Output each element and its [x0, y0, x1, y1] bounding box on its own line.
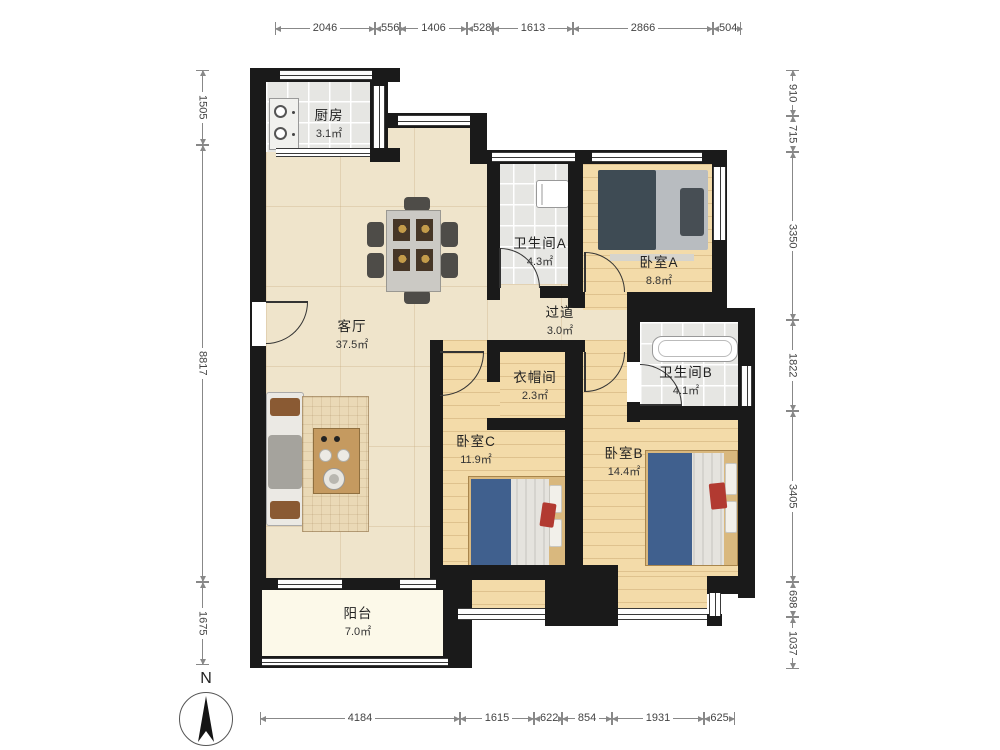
dim-value: 1505 [197, 92, 209, 122]
wall [707, 576, 753, 594]
bed-b-pillow-red [709, 482, 728, 510]
dining-chair [404, 197, 430, 211]
dim-value: 3350 [787, 221, 799, 251]
table-bowl [323, 468, 345, 490]
dim-value: 854 [575, 712, 599, 725]
bed-c-blanket [471, 479, 511, 571]
window [373, 86, 385, 148]
wall [487, 352, 500, 382]
dim-segment-right: 3405 [786, 411, 799, 582]
bedroom-b-door-panel [584, 352, 586, 392]
table-bowl-inner [329, 474, 339, 484]
window [618, 608, 707, 620]
table-item [334, 436, 340, 442]
dim-segment-top: 1406 [400, 22, 467, 35]
room-label-kitchen: 厨房 3.1㎡ [315, 104, 344, 141]
bedroom-c-door-panel [440, 351, 484, 353]
dim-segment-right: 1037 [786, 617, 799, 669]
dim-segment-right: 698 [786, 582, 799, 617]
table-item [319, 449, 332, 462]
dim-segment-right: 1822 [786, 320, 799, 411]
sofa-pillow [270, 398, 300, 416]
bathtub [652, 336, 738, 362]
dining-chair [441, 222, 458, 247]
wall [487, 418, 583, 430]
dim-value: 2046 [310, 22, 340, 35]
dim-segment-bottom: 625 [704, 712, 735, 725]
dining-chair [404, 290, 430, 304]
stove [269, 98, 299, 150]
dim-segment-top: 504 [713, 22, 741, 35]
floor-plan-canvas: 厨房 3.1㎡ 客厅 37.5㎡ 卫生间A 4.3㎡ 卧室A 8.8㎡ 过道 3… [0, 0, 1000, 750]
bed-b-pillow [725, 463, 737, 495]
dining-table [386, 210, 441, 292]
wall [443, 578, 472, 668]
room-label-bedroom-a: 卧室A 8.8㎡ [639, 251, 678, 288]
dim-value: 1037 [787, 628, 799, 658]
window [262, 658, 448, 666]
dim-segment-bottom: 622 [534, 712, 562, 725]
wall [738, 308, 755, 598]
bed-c [468, 476, 566, 572]
dim-value: 715 [787, 122, 799, 146]
sofa-cushion [268, 435, 302, 489]
bed-b-blanket [648, 453, 692, 565]
room-label-bedroom-c: 卧室C 11.9㎡ [456, 430, 496, 467]
dim-value: 1406 [418, 22, 448, 35]
room-label-closet: 衣帽间 2.3㎡ [513, 366, 557, 403]
dim-segment-bottom: 4184 [260, 712, 460, 725]
washing-machine [536, 180, 569, 208]
entry-door-opening [252, 302, 266, 346]
wall [627, 340, 640, 352]
place-mat [416, 219, 433, 241]
dim-value: 1931 [643, 712, 673, 725]
room-label-bedroom-b: 卧室B 14.4㎡ [604, 442, 643, 479]
sliding-door [278, 579, 342, 589]
room-label-bathroom-b: 卫生间B 4.1㎡ [659, 361, 713, 398]
dim-segment-top: 2046 [275, 22, 375, 35]
dim-segment-right: 910 [786, 70, 799, 116]
dim-segment-left: 1505 [196, 70, 209, 145]
bedroom-a-door-panel [584, 252, 586, 292]
room-label-living: 客厅 37.5㎡ [336, 315, 368, 352]
dim-value: 1675 [197, 608, 209, 638]
dim-value: 698 [787, 587, 799, 611]
knob-icon [292, 111, 295, 114]
table-item [321, 436, 327, 442]
dim-value: 2866 [628, 22, 658, 35]
dim-segment-right: 3350 [786, 152, 799, 320]
dim-value: 3405 [787, 481, 799, 511]
wall [565, 345, 583, 585]
dim-segment-bottom: 854 [562, 712, 612, 725]
wall [627, 292, 727, 308]
bathroom-b-door-panel [640, 404, 682, 406]
table-item [337, 449, 350, 462]
room-label-hallway: 过道 3.0㎡ [546, 301, 575, 338]
dim-segment-right: 715 [786, 116, 799, 152]
dim-segment-top: 528 [467, 22, 493, 35]
dim-segment-bottom: 1615 [460, 712, 534, 725]
place-mat [393, 249, 410, 271]
bed-a [598, 170, 708, 250]
place-mat [393, 219, 410, 241]
dim-segment-left: 1675 [196, 582, 209, 665]
window [280, 70, 372, 80]
dim-value: 8817 [197, 348, 209, 378]
room-label-balcony: 阳台 7.0㎡ [344, 602, 373, 639]
dim-value: 4184 [345, 712, 375, 725]
sofa [266, 392, 304, 526]
dim-value: 1822 [787, 350, 799, 380]
coffee-table [313, 428, 360, 494]
window [398, 115, 470, 126]
washer-detail [541, 184, 543, 205]
bathroom-a-door-panel [499, 248, 501, 288]
dim-segment-bottom: 1931 [612, 712, 704, 725]
dim-segment-left: 8817 [196, 145, 209, 582]
wall [370, 148, 400, 162]
wall [627, 406, 755, 420]
dim-segment-top: 1613 [493, 22, 573, 35]
dining-chair [367, 253, 384, 278]
north-label: N [200, 670, 212, 688]
dim-value: 910 [787, 81, 799, 105]
entry-door-panel [266, 301, 308, 303]
dim-value: 1613 [518, 22, 548, 35]
dining-chair [367, 222, 384, 247]
wall [545, 565, 618, 626]
window [713, 167, 726, 240]
bed-b [645, 450, 738, 566]
dim-segment-top: 556 [375, 22, 400, 35]
wall [627, 308, 755, 322]
room-label-bathroom-a: 卫生间A 4.3㎡ [513, 232, 567, 269]
dim-segment-top: 2866 [573, 22, 713, 35]
bed-a-blanket [598, 170, 656, 250]
window [741, 366, 752, 406]
sofa-pillow [270, 501, 300, 519]
dim-value: 1615 [482, 712, 512, 725]
knob-icon [292, 133, 295, 136]
wall [568, 150, 583, 298]
kitchen-pass-window [276, 148, 370, 157]
place-mat [416, 249, 433, 271]
dining-chair [441, 253, 458, 278]
window [592, 152, 702, 162]
burner-icon [274, 105, 287, 118]
sliding-door [400, 579, 436, 589]
floor-bedroom-b-bay [617, 576, 707, 610]
burner-icon [274, 127, 287, 140]
window [709, 593, 721, 616]
bathtub-inner [658, 340, 732, 357]
window [492, 152, 575, 162]
window [458, 608, 545, 620]
bed-a-pillow [680, 188, 704, 236]
